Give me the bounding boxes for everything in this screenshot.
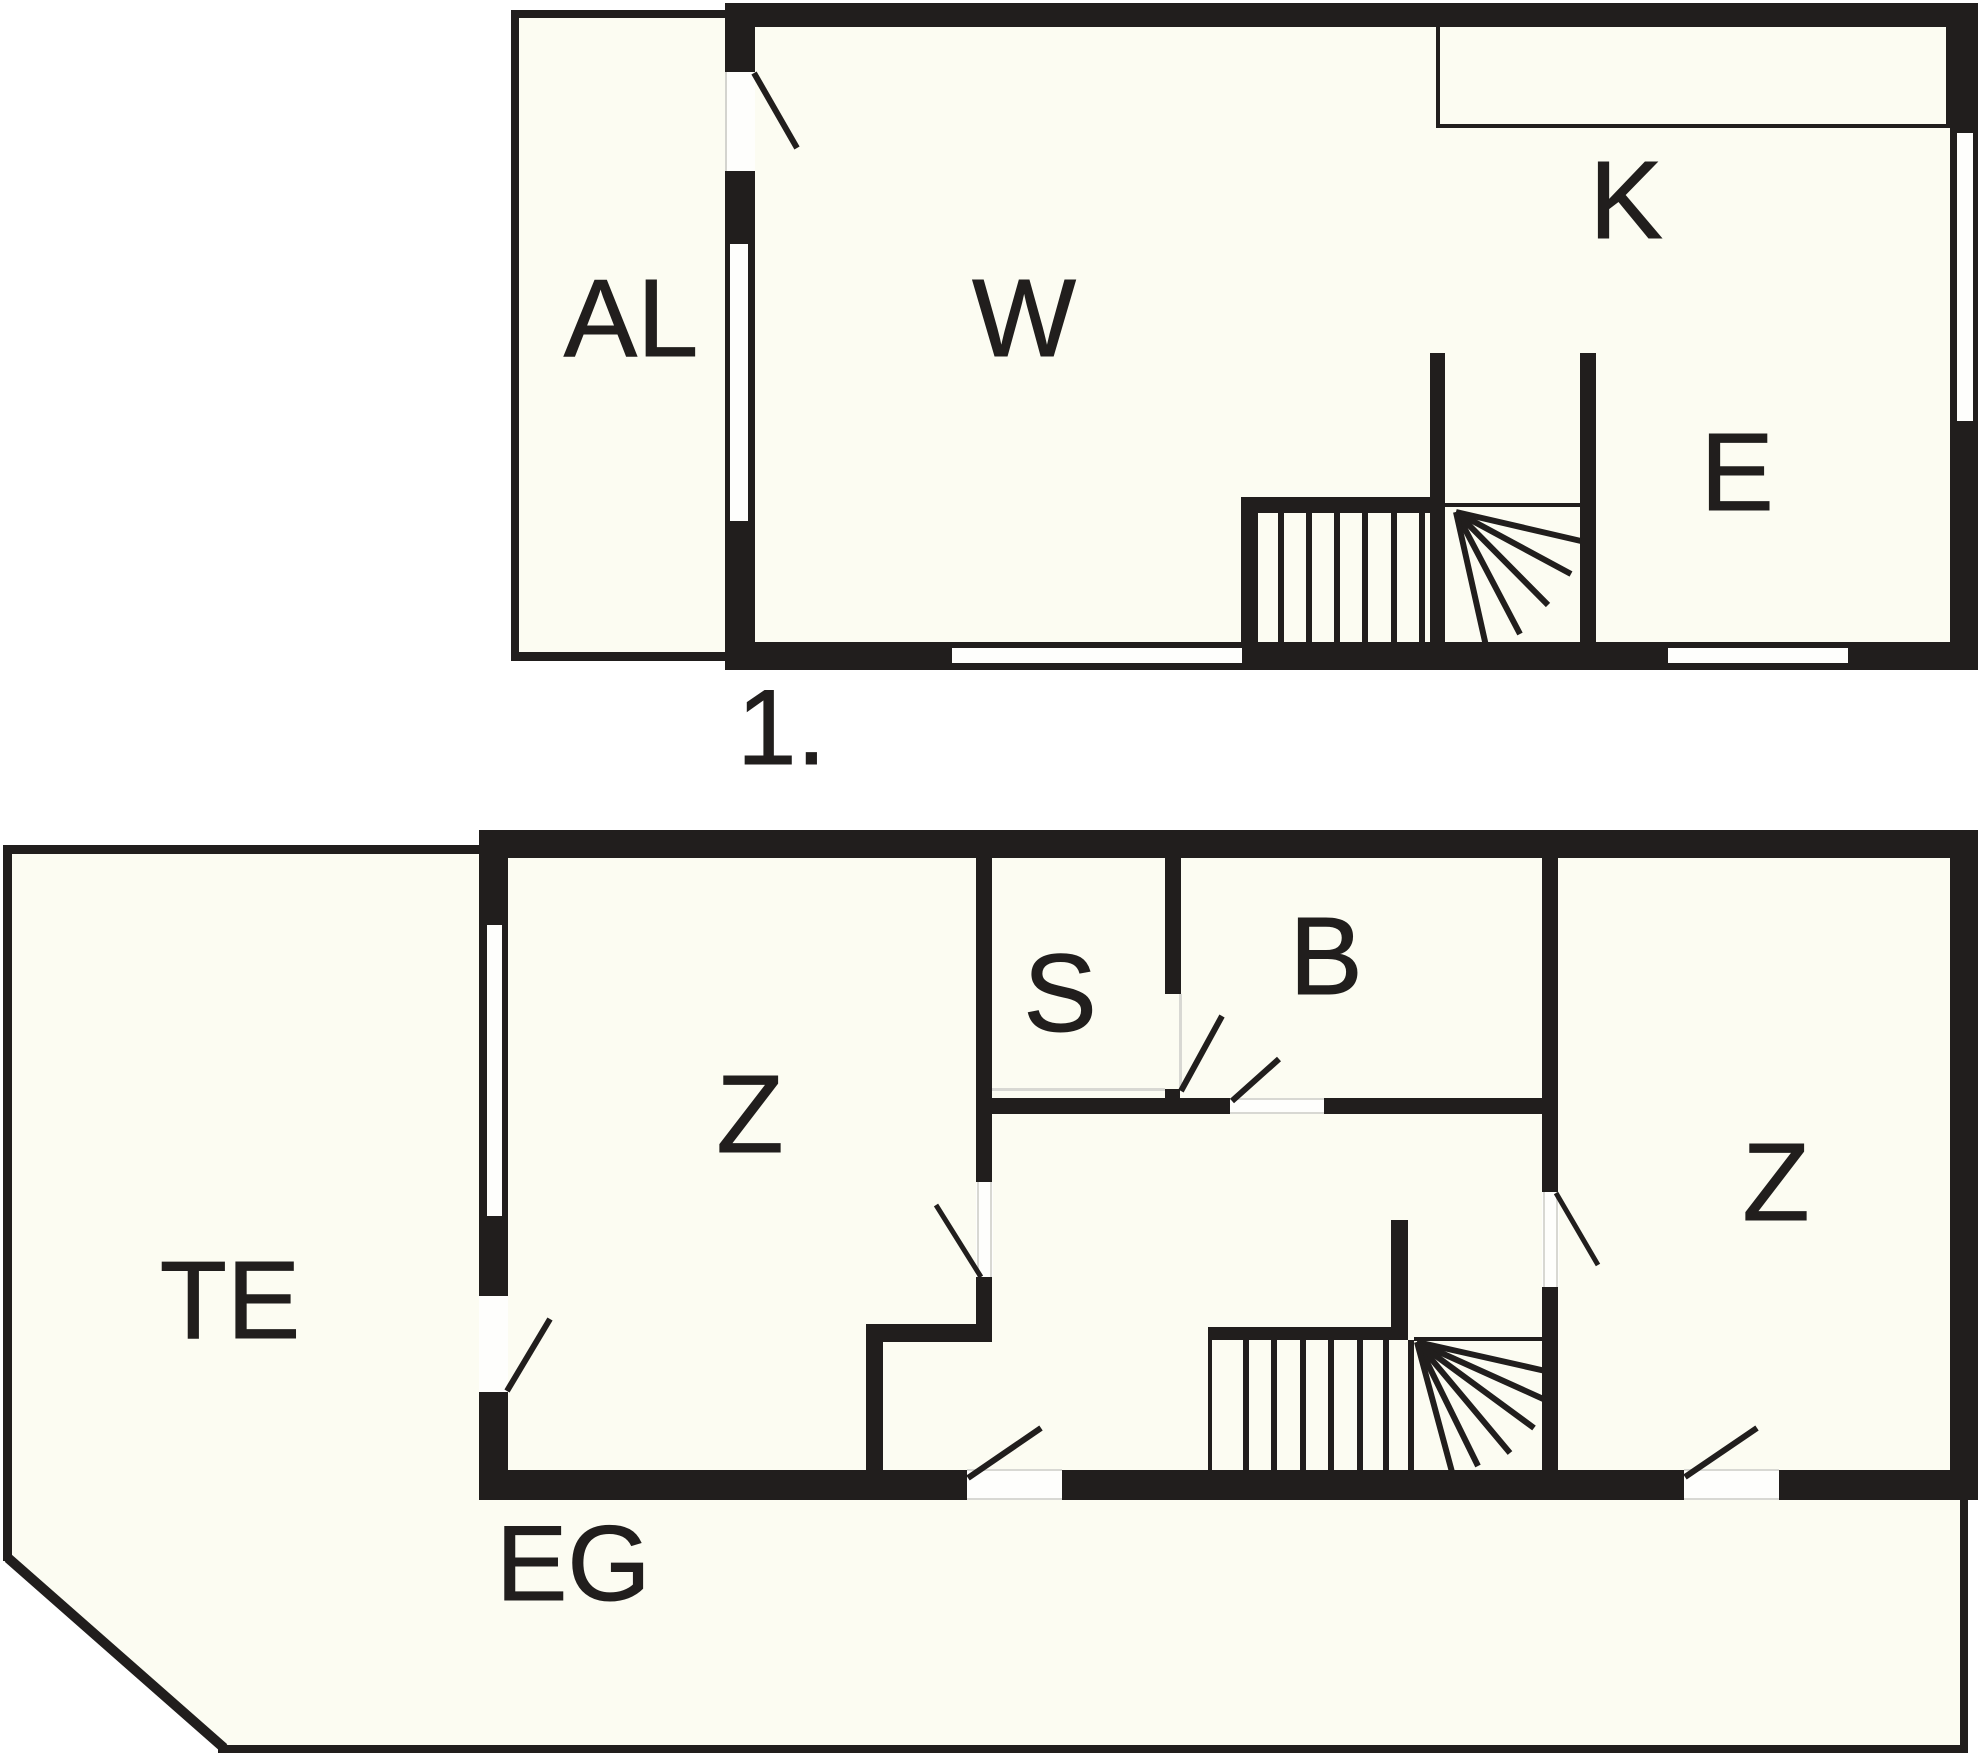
- svg-text:W: W: [972, 257, 1076, 380]
- svg-text:AL: AL: [564, 257, 699, 380]
- svg-text:Z: Z: [1742, 1121, 1809, 1244]
- svg-text:S: S: [1023, 932, 1096, 1055]
- svg-text:B: B: [1289, 895, 1362, 1018]
- svg-text:1.: 1.: [737, 667, 826, 787]
- svg-text:Z: Z: [716, 1053, 783, 1176]
- svg-text:E: E: [1700, 411, 1773, 534]
- svg-text:K: K: [1589, 139, 1662, 262]
- svg-text:TE: TE: [160, 1239, 301, 1362]
- svg-text:EG: EG: [496, 1503, 651, 1623]
